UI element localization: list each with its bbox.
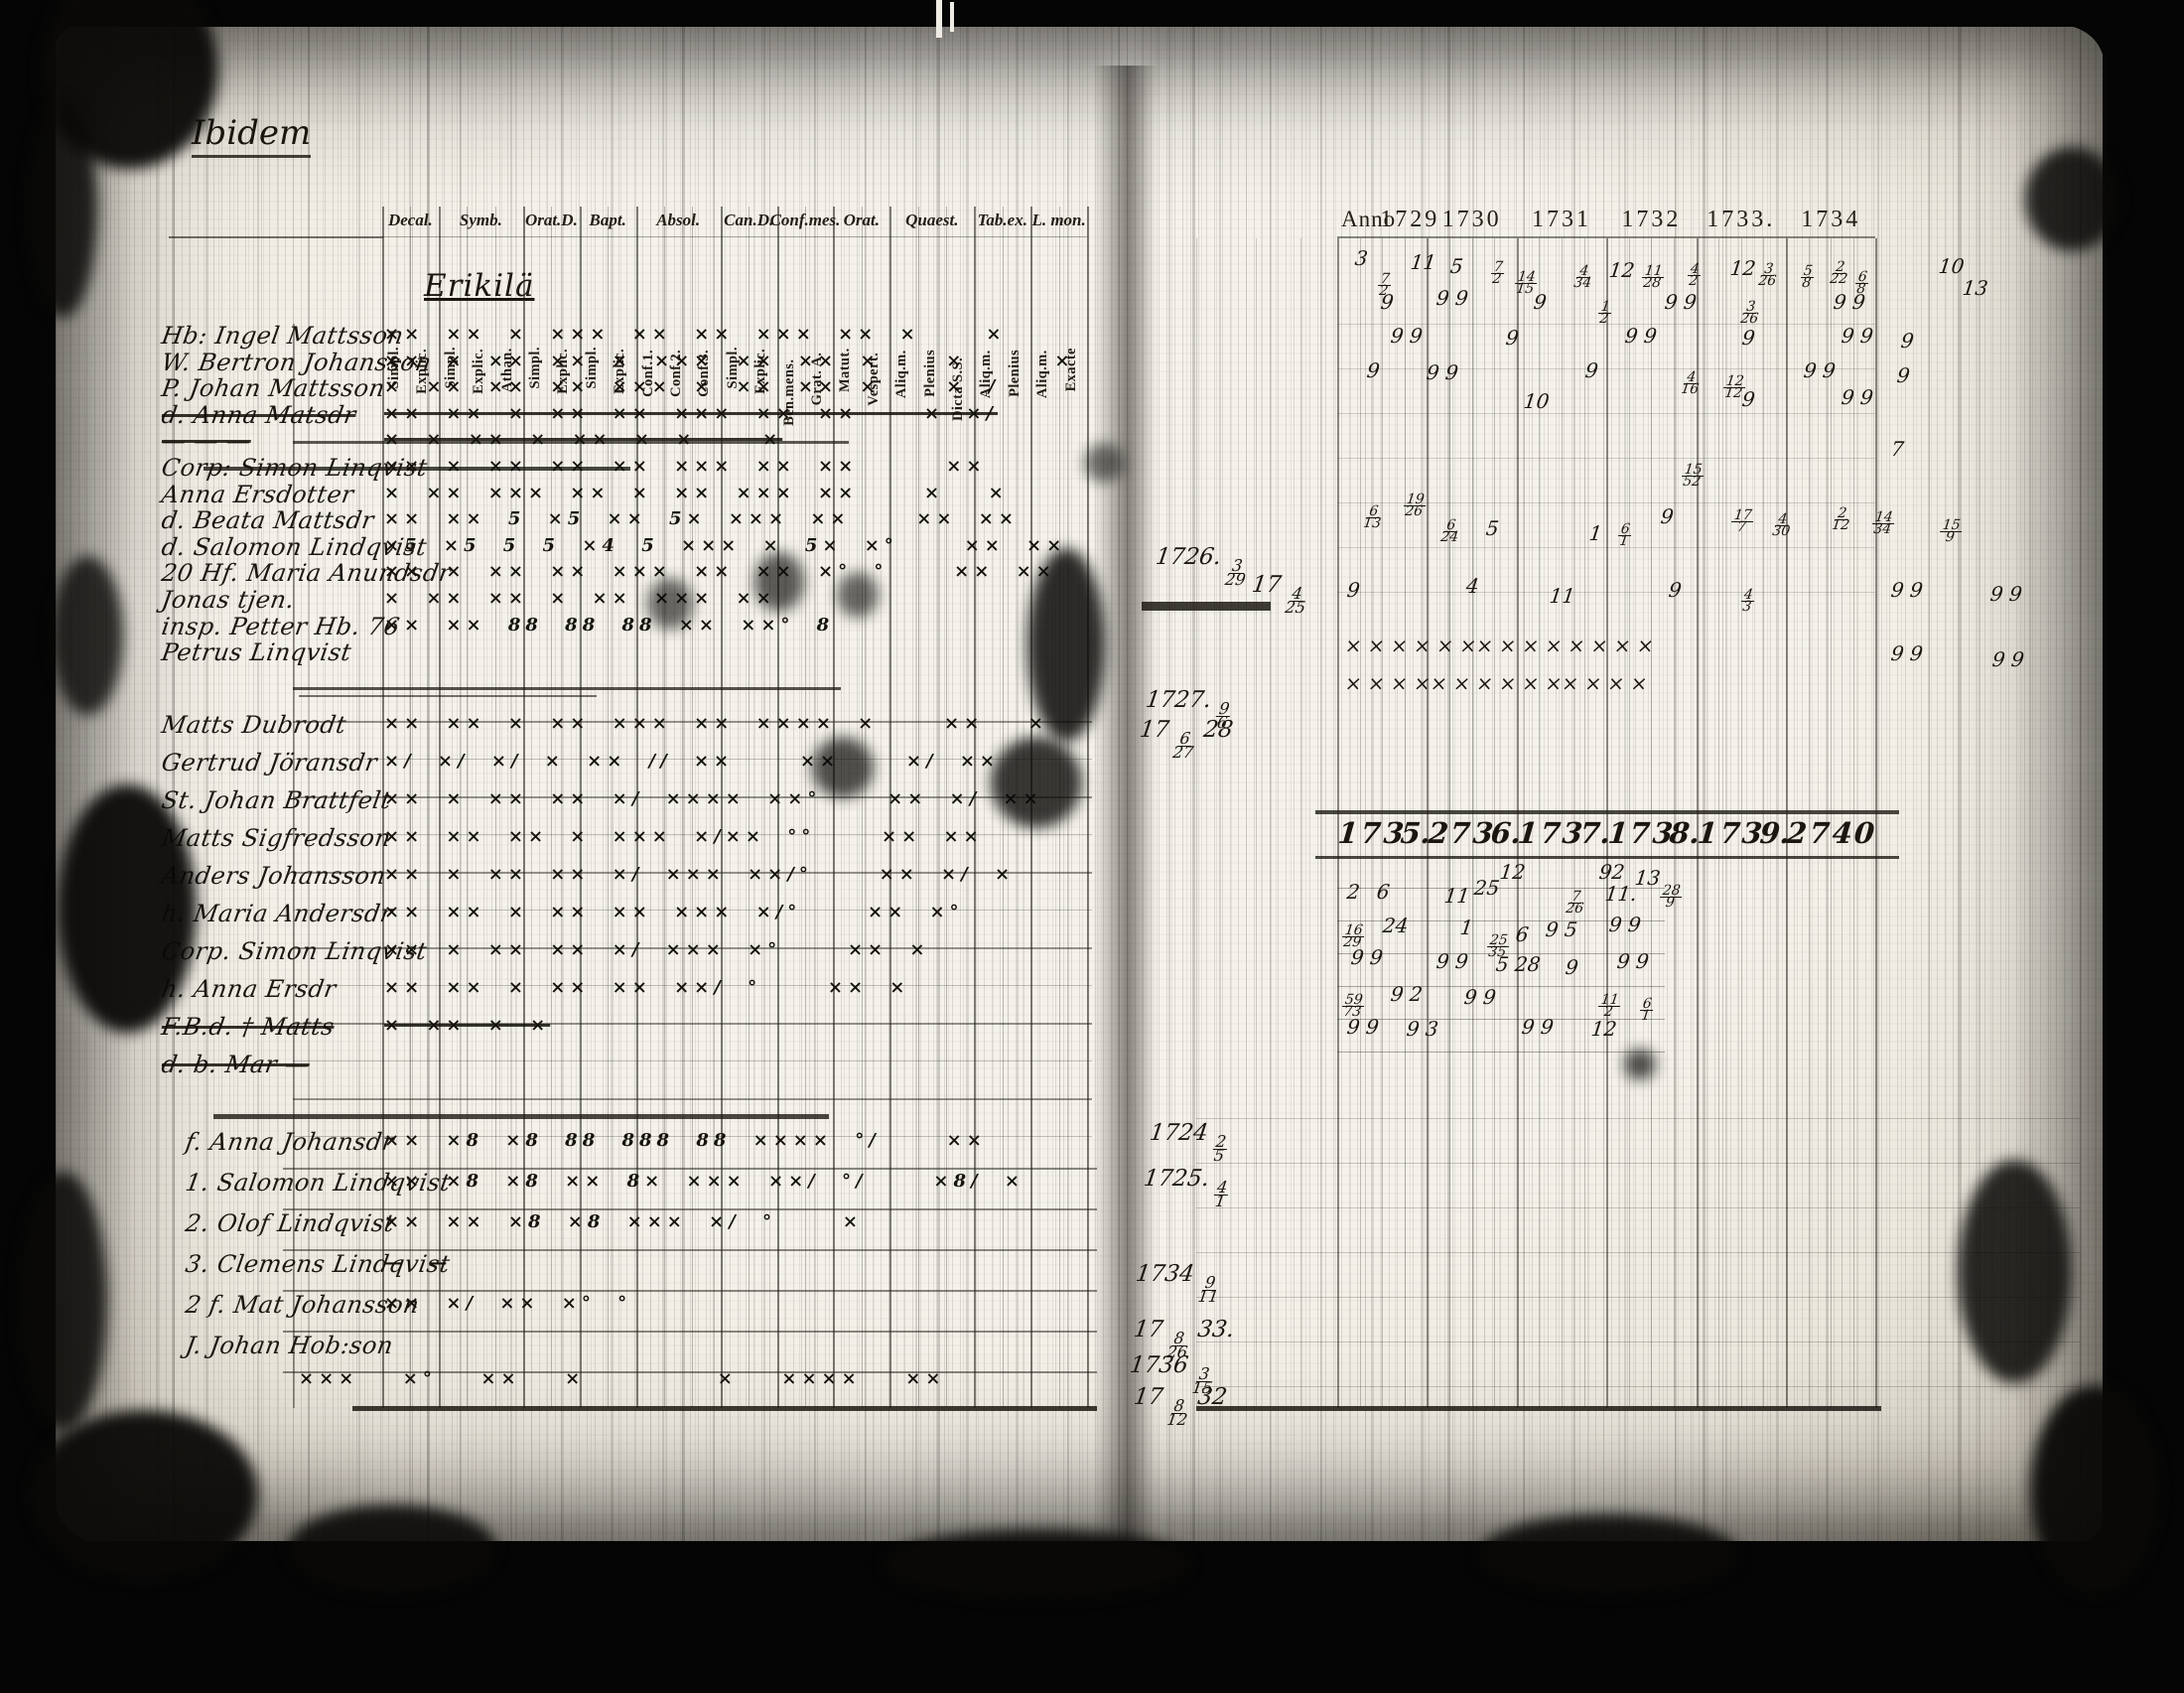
cell-entry: 9 9 <box>1664 290 1699 314</box>
cell-entry: 9 9 <box>1989 582 2024 606</box>
cell-entry: 112 <box>1597 979 1624 1019</box>
marks-row <box>384 640 1091 670</box>
marks-row: ×× × ×× ×× ×× ××× ×× ×× ×× <box>384 456 1091 486</box>
cell-entry: 9 9 <box>1841 324 1875 348</box>
marks-row: ×× × ×× ×× ×/ ××× ××/° ×× ×/ × <box>384 864 1091 894</box>
column-group-label: Orat.D. <box>525 211 578 230</box>
cell-entry: 2 <box>1346 880 1362 904</box>
gutter-annotation: 1725. 41 <box>1140 1166 1232 1208</box>
cell-entry: 43 <box>1740 574 1758 614</box>
ink-blot <box>52 556 123 715</box>
grid-line <box>1196 1341 2080 1342</box>
cell-entry: 9 <box>1366 358 1382 382</box>
cell-entry: 222 <box>1830 246 1852 286</box>
cell-entry: 6 <box>1376 880 1392 904</box>
cell-entry: 12 <box>1597 286 1615 326</box>
marks-row: × × ×× × ×× × × × <box>384 429 1091 459</box>
cell-entry: 9 <box>1533 290 1549 314</box>
film-notch-1 <box>936 0 942 38</box>
cell-entry: 5 <box>1485 516 1501 540</box>
marks-row: × ×× ××× ×× × ×× ××× ×× × × <box>384 483 1091 512</box>
cell-entry: 9 9 <box>1521 1015 1556 1039</box>
column-group-label: L. mon. <box>1031 211 1085 230</box>
cell-entry: 9 9 <box>1991 647 2026 671</box>
cell-entry: 9 9 <box>1616 949 1651 973</box>
cell-entry: 5 <box>1449 254 1465 278</box>
cell-entry: 5 28 <box>1495 952 1542 976</box>
gutter-annotation: 17 812 32 <box>1130 1384 1229 1427</box>
marks-row: ×× ×× × ×× ××× ×× ×××× × ×× × <box>384 713 1091 743</box>
grid-line <box>1196 1386 2080 1387</box>
marks-row <box>384 1053 1091 1082</box>
marks-row <box>384 1334 1091 1363</box>
cell-entry: 289 <box>1659 870 1686 910</box>
table-bottom-rule <box>1196 1406 1881 1411</box>
ink-blot <box>837 572 879 618</box>
column-group-label: Can.D. <box>724 211 773 230</box>
strike-rule <box>213 1114 829 1119</box>
cell-entry: 42 <box>1687 248 1705 288</box>
cell-entry: 9 9 <box>1435 286 1470 310</box>
cell-entry: 13 <box>1962 276 1989 300</box>
grid-line <box>1337 1052 1665 1053</box>
cell-entry: 159 <box>1939 504 1966 544</box>
cell-entry: 416 <box>1681 356 1704 396</box>
cell-entry: 9 9 <box>1390 324 1425 348</box>
marks-row: ×× ×8 ×8 88 888 88 ×××× °/ ×× <box>384 1130 1091 1160</box>
name-row: 2. Olof Lindqvist <box>184 1209 397 1237</box>
cell-entry: 25 <box>1473 876 1501 900</box>
cell-entry: 9 9 <box>1350 945 1385 969</box>
marks-row: ×5 ×5 5 5 ×4 5 ××× × 5× ×° ×× ×× <box>384 535 1091 565</box>
cell-entry: 1926 <box>1403 479 1430 518</box>
mid-year-digit: 1 <box>1337 816 1360 850</box>
grid-line <box>1196 1297 2080 1298</box>
cell-entry: 61 <box>1639 983 1657 1023</box>
microfilm-scan: Ibidem Erikilä Decal.Simpl.Explic.Symb.S… <box>0 0 2184 1693</box>
ink-blot <box>58 784 197 1033</box>
cell-entry: 9 9 <box>1346 1015 1381 1039</box>
cell-entry: 9 <box>1900 329 1916 353</box>
column-group-label: Orat. <box>844 211 880 230</box>
grid-line <box>1337 458 1875 459</box>
cell-entry: 9 5 <box>1545 917 1579 941</box>
cell-entry: 430 <box>1772 498 1795 538</box>
cell-entry: 12 <box>1608 258 1636 282</box>
cell-entry: 9 <box>1668 578 1684 602</box>
cell-entry: 9 9 <box>1890 578 1925 602</box>
ink-blot <box>2025 147 2119 251</box>
marks-row: ×/ ×/ ×/ × ×× // ×× ×× ×/ ×× <box>384 751 1091 780</box>
cell-entry: 9 9 <box>1435 949 1470 973</box>
cell-entry: 4 <box>1465 574 1481 598</box>
cell-entry: 9 9 <box>1841 385 1875 409</box>
cell-entry: 1 <box>1588 521 1604 545</box>
marks-row: ×× × ×× ×× × ××× ×× ×× × × × <box>384 351 1091 380</box>
flourish-underline <box>293 687 841 690</box>
cell-entry: 9 9 <box>1463 985 1498 1009</box>
ink-blot <box>30 1410 258 1579</box>
marks-row: ×× × ×× ×× ××× ×× ×× ×° ° ×× ×× <box>384 561 1091 591</box>
mid-year-digit: 7 <box>1449 816 1472 850</box>
name-row: insp. Petter Hb. 76 <box>160 613 402 640</box>
column-group-label: Conf.mes. <box>770 211 841 230</box>
cell-entry: 1434 <box>1871 496 1898 536</box>
grid-line <box>1875 238 1877 1408</box>
cell-entry: 1128 <box>1641 250 1668 290</box>
grid-line <box>1196 1118 2080 1119</box>
cell-entry: 1552 <box>1681 449 1707 489</box>
cell-entry: 5973 <box>1341 979 1368 1019</box>
ink-blot <box>812 737 874 798</box>
grid-line <box>1256 238 1257 1406</box>
cell-entry: 624 <box>1440 504 1463 544</box>
cell-entry: 9 <box>1660 504 1676 528</box>
ink-blot <box>1479 1514 1737 1594</box>
ink-blot <box>754 552 804 612</box>
marks-row: × ×× ×× × ×× ××× ×× <box>384 588 1091 618</box>
name-row: h. Anna Ersdr <box>160 975 339 1003</box>
page-note: Ibidem <box>192 113 311 158</box>
ink-blot <box>288 1504 496 1594</box>
name-row: St. Johan Brattfelt <box>160 786 393 814</box>
grid-line <box>1300 238 1301 1406</box>
name-row: F.B.d. † Matts <box>160 1013 337 1041</box>
cell-entry: 12 <box>1590 1017 1618 1041</box>
cell-entry: 11 <box>1549 584 1576 608</box>
mid-year-digit: 2 <box>1427 816 1449 850</box>
marks-row: ×× ×× × ×× ×× ××× ×× ×× × ×/ <box>384 403 1091 433</box>
grid-line <box>1337 413 1875 414</box>
name-row: Gertrud Jöransdr <box>160 749 379 776</box>
cell-entry: 72 <box>1490 246 1508 286</box>
grid-line <box>1196 1207 2080 1208</box>
cell-entry: 9 2 <box>1390 982 1425 1006</box>
header-rule <box>382 236 1087 237</box>
cell-entry: 12 <box>1499 860 1527 884</box>
year-label: 1730 <box>1442 207 1502 233</box>
cell-entry: 9 9 <box>1426 360 1460 384</box>
name-row: d. Anna Matsdr <box>160 401 358 429</box>
cell-entry: 24 <box>1382 914 1410 937</box>
year-label: 1731 <box>1532 207 1591 233</box>
frame-top <box>0 0 2184 27</box>
year-label: 1734 <box>1801 207 1860 233</box>
name-row: — — — <box>160 427 253 455</box>
ink-blot <box>1027 548 1105 742</box>
mid-year-digit: 7 <box>1808 816 1831 850</box>
cell-entry: 212 <box>1832 493 1854 532</box>
cell-entry: 326 <box>1740 286 1763 326</box>
marks-row: ×× ×× × ×× ×× ××/ ° ×× × <box>384 977 1091 1007</box>
name-row: J. Johan Hob:son <box>184 1332 395 1359</box>
cell-entry: 10 <box>1938 254 1966 278</box>
cell-entry: × × × ×× × × × × ×× × × × <box>1344 671 1649 695</box>
ink-blot <box>991 737 1082 828</box>
cell-entry: 1629 <box>1341 910 1368 949</box>
grid-line <box>283 1331 1097 1333</box>
cell-entry: 10 <box>1523 389 1551 413</box>
marks-row: ×× × ×× ×× ×/ ×××× ××° ×× ×/ ×× <box>384 788 1091 818</box>
marks-row: ×× ×× × ××× ×× ×× ××× ×× × × × <box>384 324 1091 353</box>
cell-entry: 11 <box>1410 250 1437 274</box>
cell-entry: 9 9 <box>1624 324 1659 348</box>
cell-entry: 9 <box>1565 955 1580 979</box>
name-row: f. Anna Johansdr <box>184 1128 396 1156</box>
grid-line <box>1196 1163 2080 1164</box>
column-group-label: Absol. <box>656 211 700 230</box>
cell-entry: 9 <box>1896 363 1912 387</box>
year-label: 1729 <box>1380 207 1439 233</box>
column-group-label: Bapt. <box>590 211 626 230</box>
marks-row: ×× ×× 5 ×5 ×× 5× ××× ×× ×× ×× <box>384 508 1091 538</box>
grid-line <box>1337 592 1875 593</box>
cell-entry: 434 <box>1573 250 1596 290</box>
marks-row: — — <box>384 1252 1091 1282</box>
cell-entry: × × × × × ×× × × × × × × × <box>1344 634 1656 657</box>
column-group-label: Decal. <box>388 211 433 230</box>
cell-entry: 326 <box>1758 248 1781 288</box>
marks-row: ×× ×8 ×8 ×× 8× ××× ××/ °/ ×8/ × <box>384 1171 1091 1200</box>
year-label: 1732 <box>1621 207 1681 233</box>
column-group-label: Tab.ex. <box>978 211 1027 230</box>
years-underline <box>1337 236 1875 238</box>
name-row: Matts Dubrodt <box>160 711 348 739</box>
cell-entry: 7 <box>1890 437 1906 461</box>
name-row: Petrus Linqvist <box>160 638 353 666</box>
mid-year-digit: 1 <box>1606 816 1629 850</box>
name-row: Matts Sigfredsson <box>160 824 393 852</box>
mid-year-digit: 2 <box>1786 816 1809 850</box>
gutter-annotation: 1726. 329 <box>1152 544 1251 587</box>
marks-row: × ×× ×× ×× ××× × ×× ×× × × / <box>384 376 1091 406</box>
name-row: Jonas tjen. <box>160 586 297 614</box>
ink-blot <box>884 1529 1191 1599</box>
header-rule <box>169 236 383 238</box>
cell-entry: 58 <box>1800 250 1818 290</box>
flourish-underline <box>299 695 597 697</box>
cell-entry: 9 <box>1380 290 1396 314</box>
column-group-label: Symb. <box>460 211 502 230</box>
grid-line <box>1196 238 1197 1406</box>
name-row: d. b. Mar — <box>160 1051 312 1078</box>
final-marks-row: ××× ×° ×× × × ×××× ×× ×× × <box>299 1368 1073 1398</box>
mid-year-digit: 7 <box>1359 816 1382 850</box>
mid-year-digit: 0 <box>1853 816 1876 850</box>
cell-entry: 3 <box>1354 246 1370 270</box>
cell-entry: 11 <box>1443 884 1471 908</box>
cell-entry: 9 3 <box>1406 1017 1440 1041</box>
ink-blot <box>1624 1049 1656 1080</box>
ink-blot <box>2030 1385 2159 1594</box>
cell-entry: 6 <box>1515 922 1531 946</box>
marks-row: × ×× × × <box>384 1015 1091 1045</box>
mid-year-digit: 7 <box>1539 816 1562 850</box>
gutter-annotation: 1724 25 <box>1146 1120 1231 1163</box>
ink-blot <box>18 1172 107 1430</box>
marks-row: ×× × ×× ×× ×/ ××× ×° ×× × <box>384 939 1091 969</box>
year-label: 1733. <box>1706 207 1775 233</box>
mid-year-digit: 1 <box>1517 816 1540 850</box>
cell-entry: 92 <box>1598 860 1626 884</box>
ink-blot <box>1084 443 1124 483</box>
cell-entry: 12 <box>1729 256 1757 280</box>
mid-year-digit: 7 <box>1629 816 1652 850</box>
cell-entry: 9 9 <box>1833 290 1867 314</box>
scribble <box>1142 602 1271 611</box>
cell-entry: 9 <box>1505 326 1521 350</box>
marks-row: ×× ×× × ×× ×× ××× ×/° ×× ×° <box>384 902 1091 931</box>
name-row: Hb: Ingel Mattsson <box>160 322 406 350</box>
ink-blot <box>1958 1160 2072 1383</box>
mid-band-rule <box>1315 810 1899 814</box>
film-notch-2 <box>950 2 954 32</box>
cell-entry: 9 9 <box>1890 641 1925 665</box>
mid-year-digit: 1 <box>1696 816 1718 850</box>
marks-row: ×× ×× ×8 ×8 ××× ×/ ° × <box>384 1211 1091 1241</box>
marks-row: ×× ×× 88 88 88 ×× ××° 8 <box>384 615 1091 644</box>
gutter-annotation: 1734 911 <box>1132 1261 1223 1304</box>
marks-row: ×× ×× ×× × ××× ×/×× °° ×× ×× <box>384 826 1091 856</box>
grid-line <box>283 1208 1097 1210</box>
ink-blot <box>28 99 97 318</box>
name-row: Anna Ersdotter <box>160 481 356 508</box>
cell-entry: 9 <box>1741 387 1757 411</box>
mid-band-rule <box>1315 856 1899 859</box>
grid-line <box>1337 547 1875 548</box>
cell-entry: 9 9 <box>1803 358 1838 382</box>
cell-entry: 9 <box>1346 578 1362 602</box>
grid-line <box>293 1098 1092 1100</box>
cell-entry: 9 9 <box>1608 913 1643 936</box>
cell-entry: 61 <box>1617 508 1635 548</box>
mid-year-digit: 4 <box>1831 816 1853 850</box>
ink-blot <box>647 578 693 630</box>
marks-row: ×× ×/ ×× ×° ° <box>384 1293 1091 1323</box>
gutter-annotation: 17 627 28 <box>1136 717 1235 760</box>
name-row: d. Beata Mattsdr <box>160 506 376 534</box>
cell-entry: 13 <box>1634 866 1662 890</box>
grid-line <box>1337 368 1875 369</box>
cell-entry: 177 <box>1730 494 1757 534</box>
name-row: P. Johan Mattsson <box>160 374 387 402</box>
mid-year-digit: 7 <box>1718 816 1741 850</box>
table-bottom-rule <box>352 1406 1097 1411</box>
cell-entry: 9 <box>1584 358 1600 382</box>
grid-line <box>1196 1252 2080 1253</box>
cell-entry: 9 <box>1741 326 1757 350</box>
column-group-label: Quaest. <box>905 211 958 230</box>
